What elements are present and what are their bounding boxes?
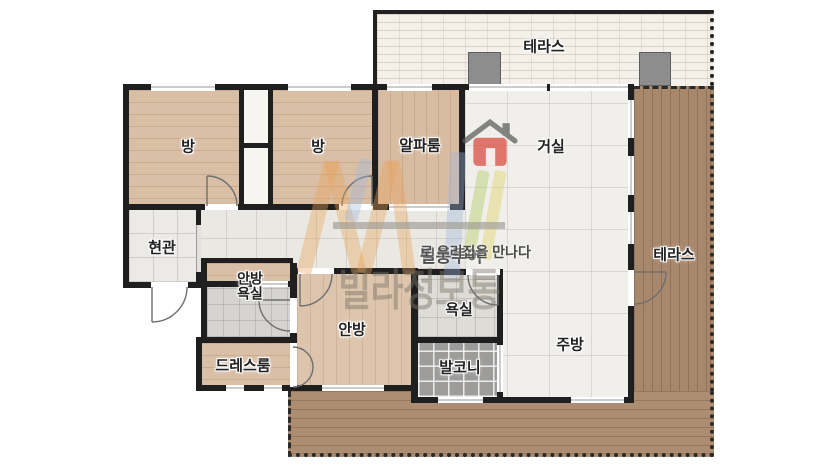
watermark-brand: 빌라정보통 bbox=[338, 254, 500, 318]
door-arc-dress-double bbox=[293, 347, 313, 387]
label-terrace-top: 테라스 bbox=[523, 36, 564, 57]
label-bathroom: 욕실 bbox=[445, 299, 473, 320]
floor-plan: 빌통투어로 우리집을 만나다 빌라정보통 테라스 방 방 알파룸 거실 현관 안… bbox=[0, 0, 840, 472]
logo-house-icon bbox=[462, 118, 518, 170]
label-master-bedroom: 안방 bbox=[338, 319, 366, 340]
door-arc-entrance bbox=[152, 287, 187, 322]
label-dress-room: 드레스룸 bbox=[215, 355, 270, 376]
label-bedroom1: 방 bbox=[181, 136, 195, 157]
door-arc-masterbath bbox=[259, 300, 290, 331]
door-arc-bedroom1 bbox=[207, 176, 237, 206]
label-entrance: 현관 bbox=[148, 237, 176, 258]
label-kitchen: 주방 bbox=[556, 334, 584, 355]
label-bedroom2: 방 bbox=[311, 136, 325, 157]
label-balcony: 발코니 bbox=[439, 357, 480, 378]
label-living-room: 거실 bbox=[537, 136, 565, 157]
door-arc-terrace bbox=[634, 272, 666, 304]
door-arcs bbox=[0, 0, 840, 472]
label-terrace-right: 테라스 bbox=[653, 244, 694, 265]
label-master-bath: 안방 욕실 bbox=[237, 271, 263, 300]
door-arc-master bbox=[300, 274, 332, 306]
label-alpha-room: 알파룸 bbox=[399, 135, 440, 156]
logo-underline-bar bbox=[333, 222, 505, 229]
